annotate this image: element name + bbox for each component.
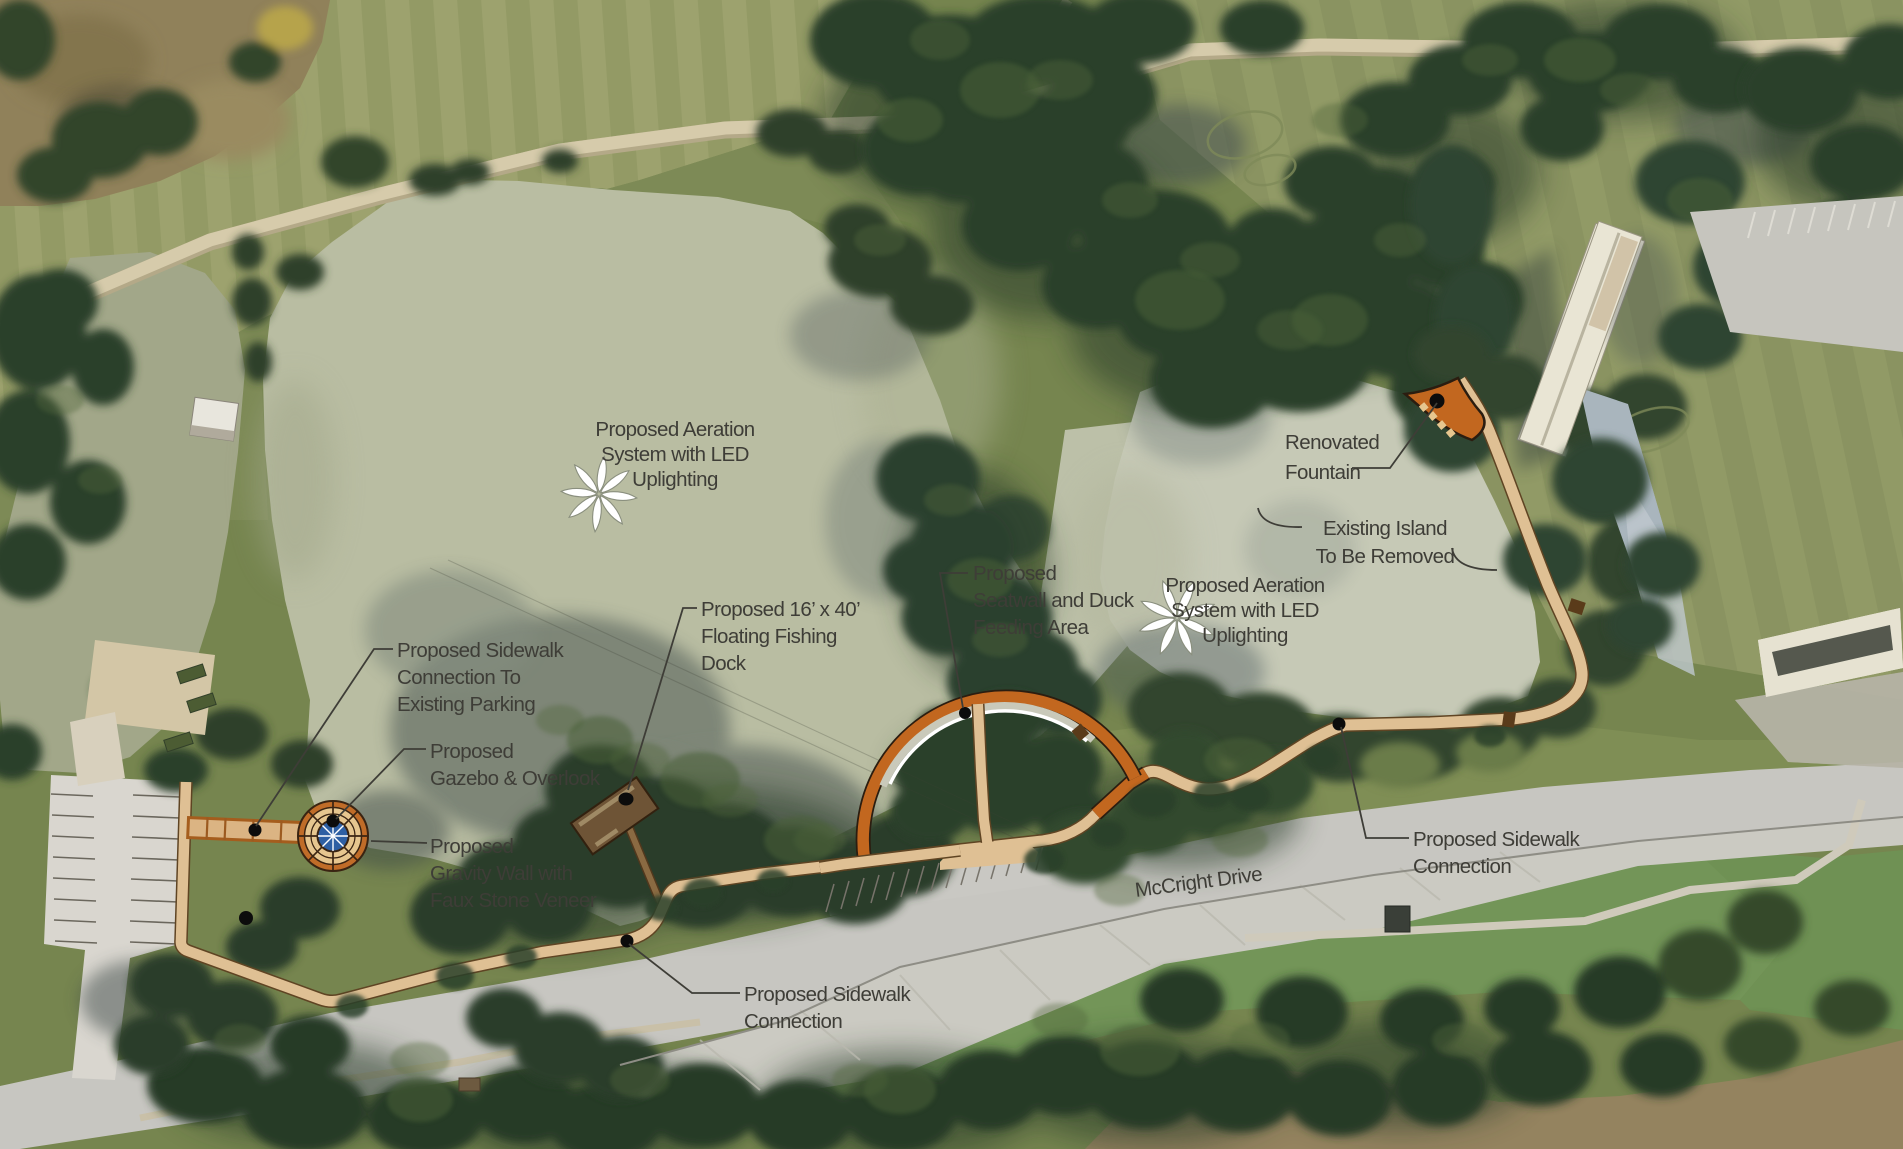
svg-text:Proposed: Proposed xyxy=(430,835,514,858)
svg-text:Seatwall and Duck: Seatwall and Duck xyxy=(973,589,1135,612)
svg-text:Proposed 16’ x 40’: Proposed 16’ x 40’ xyxy=(701,598,860,621)
svg-text:Floating Fishing: Floating Fishing xyxy=(701,625,837,648)
svg-text:System with LED: System with LED xyxy=(1171,599,1319,622)
svg-text:Connection: Connection xyxy=(744,1010,842,1033)
svg-text:Uplighting: Uplighting xyxy=(1202,624,1288,647)
svg-text:Existing Island: Existing Island xyxy=(1323,517,1447,540)
svg-text:Proposed: Proposed xyxy=(430,740,514,763)
svg-text:Gravity Wall with: Gravity Wall with xyxy=(430,862,573,885)
svg-text:Proposed Sidewalk: Proposed Sidewalk xyxy=(744,983,911,1006)
svg-text:Connection: Connection xyxy=(1413,855,1511,878)
svg-text:Connection To: Connection To xyxy=(397,666,521,689)
svg-text:Proposed Aeration: Proposed Aeration xyxy=(1165,574,1324,597)
svg-text:Uplighting: Uplighting xyxy=(632,468,718,491)
svg-text:Existing Parking: Existing Parking xyxy=(397,693,535,716)
svg-text:To Be Removed: To Be Removed xyxy=(1316,545,1455,568)
svg-text:Feeding Area: Feeding Area xyxy=(973,616,1089,639)
svg-text:Renovated: Renovated xyxy=(1285,431,1379,454)
svg-text:Fountain: Fountain xyxy=(1285,461,1361,484)
svg-text:System with LED: System with LED xyxy=(601,443,749,466)
svg-text:Proposed Sidewalk: Proposed Sidewalk xyxy=(397,639,564,662)
svg-text:Proposed: Proposed xyxy=(973,562,1057,585)
svg-text:Gazebo & Overlook: Gazebo & Overlook xyxy=(430,767,601,790)
svg-text:Proposed Aeration: Proposed Aeration xyxy=(595,418,754,441)
svg-text:Dock: Dock xyxy=(701,652,747,675)
svg-text:Faux Stone Veneer: Faux Stone Veneer xyxy=(430,889,597,912)
svg-text:Proposed Sidewalk: Proposed Sidewalk xyxy=(1413,828,1580,851)
